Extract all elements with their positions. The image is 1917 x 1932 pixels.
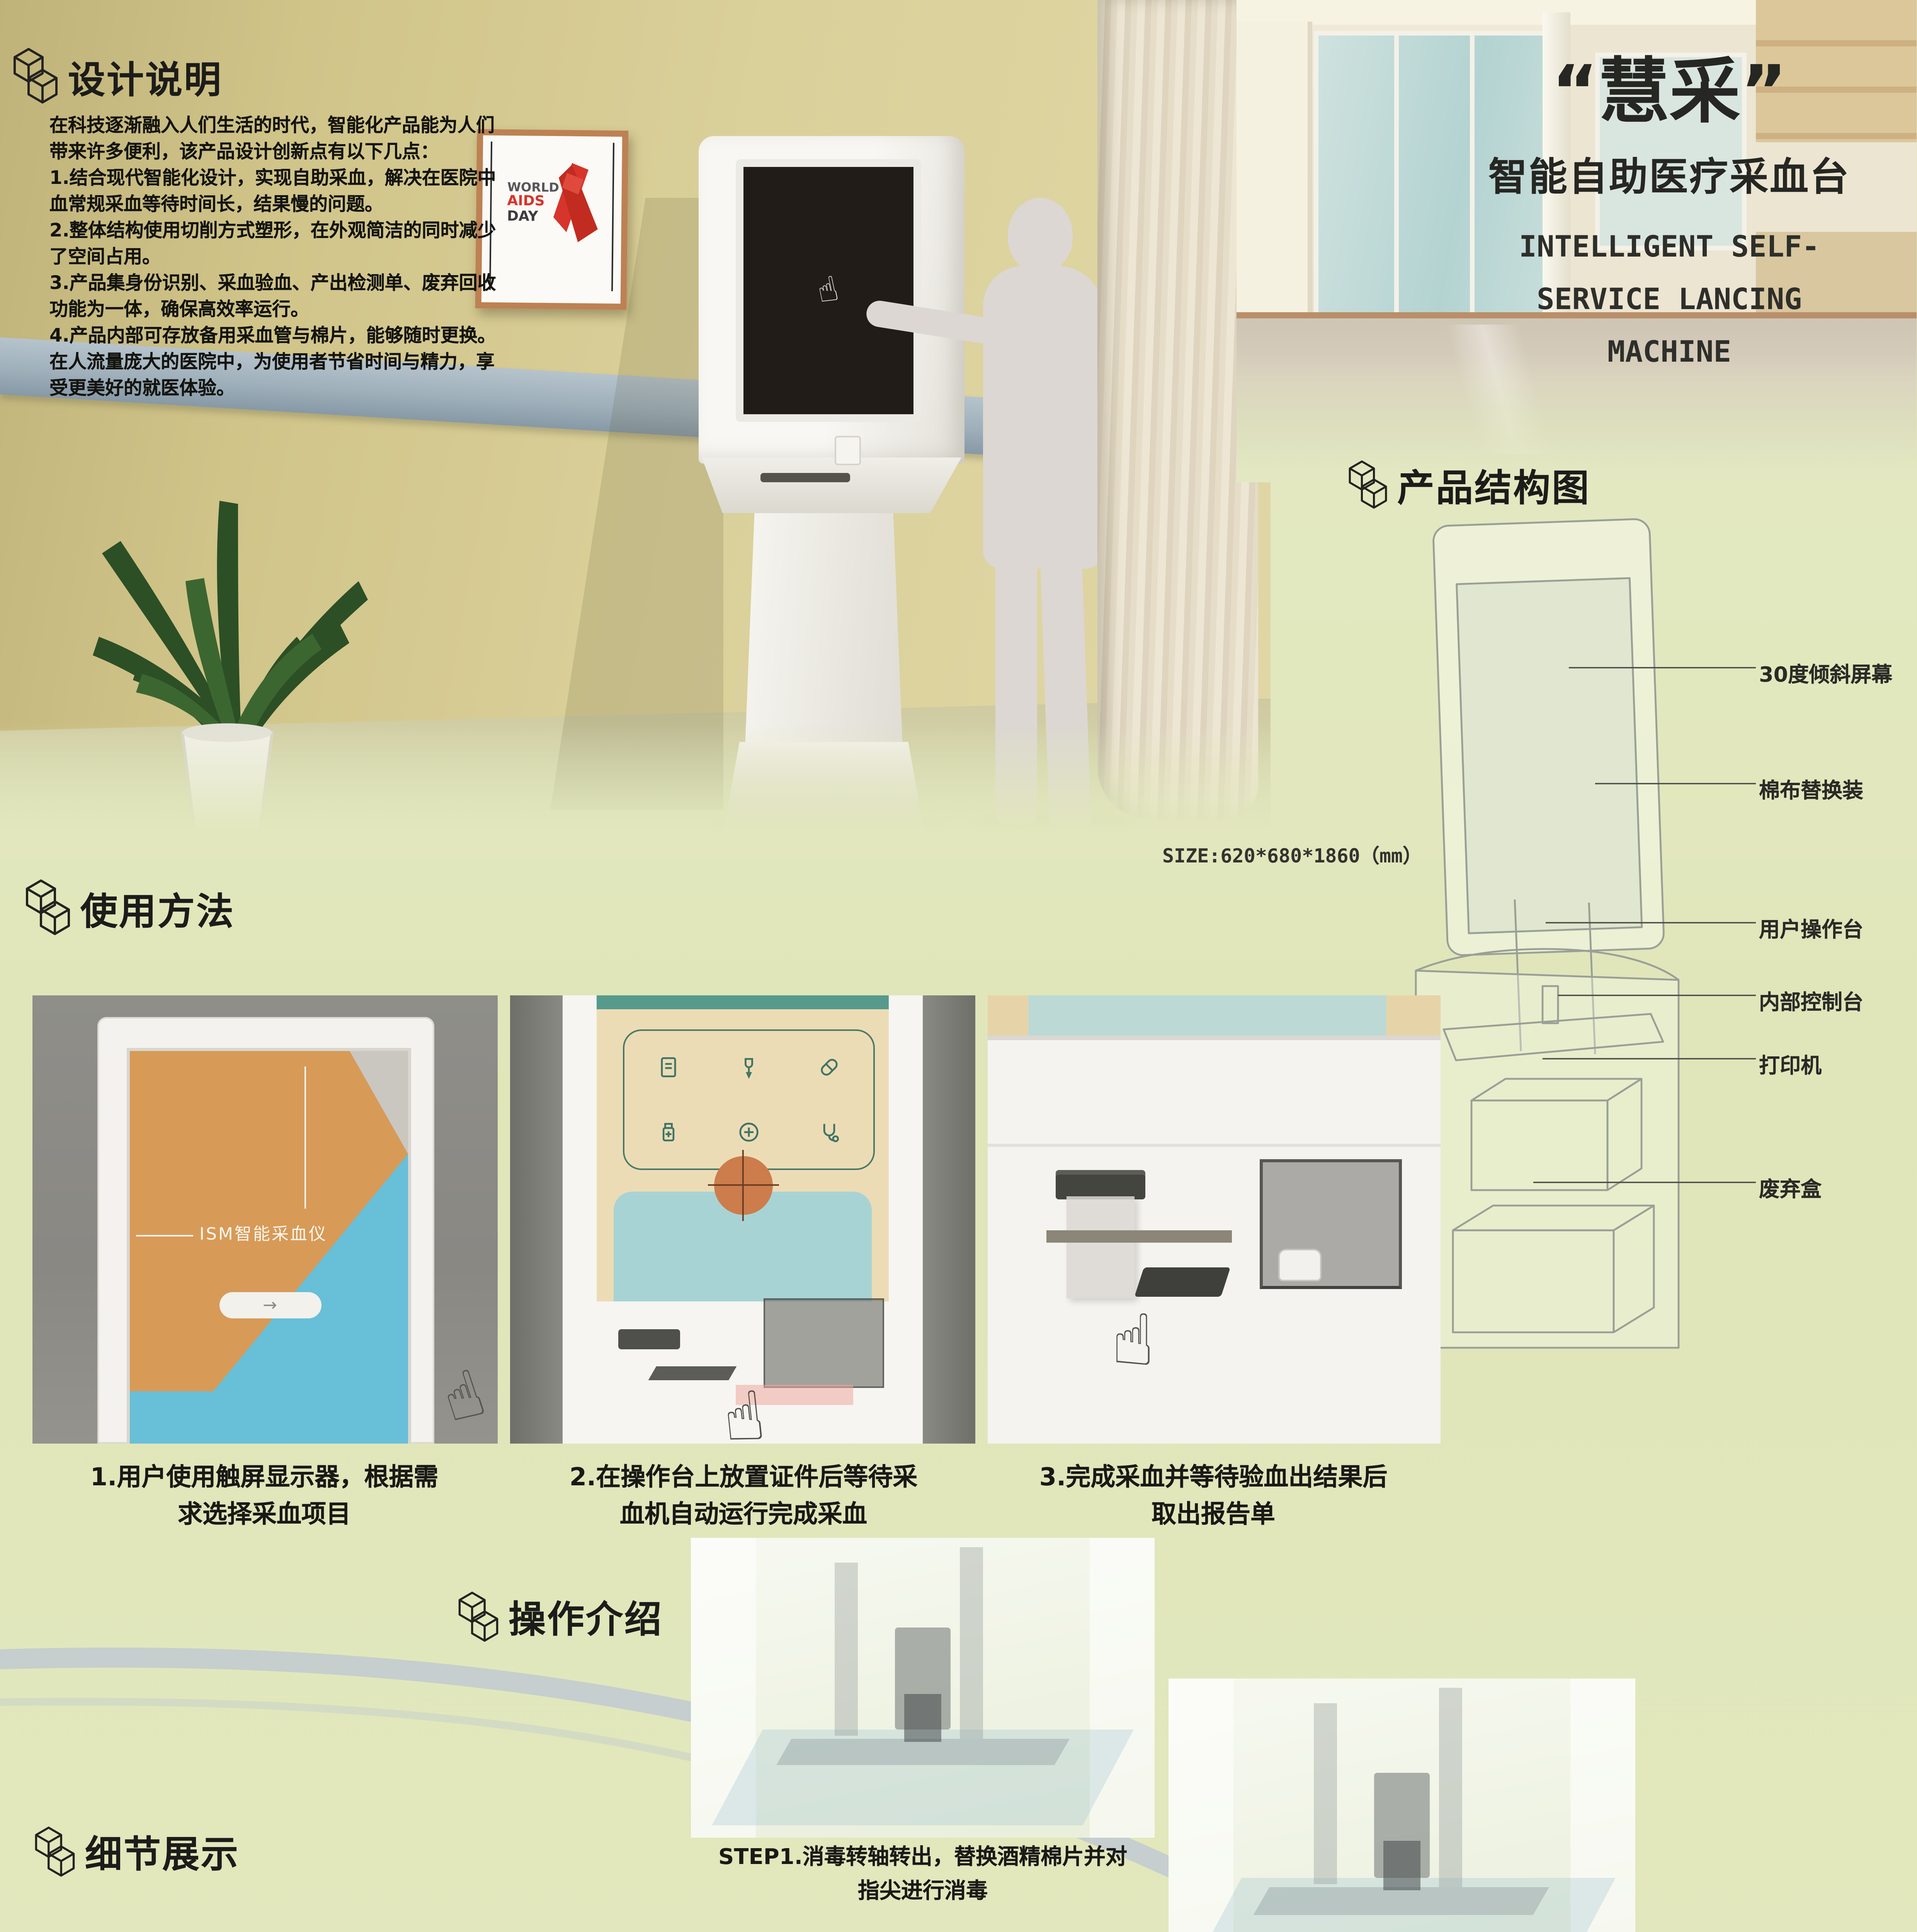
design-note-point: 2.整体结构使用切削方式塑形，在外观简洁的同时减少了空间占用。 [49,218,504,271]
kiosk-touchscreen: ISM智能采血仪 → [127,1048,411,1444]
report-slip [1067,1196,1135,1298]
iv-drip-icon [737,1056,760,1079]
medicine-bottle-icon [657,1120,680,1143]
cube-logo-icon [458,1590,499,1642]
design-note-point: 1.结合现代智能化设计，实现自助采血，解决在医院中血常规采血等待时间长，结果慢的… [49,165,504,218]
kiosk-side-pillar [923,995,975,1444]
operation-step1-image [691,1538,1155,1838]
structure-title: 产品结构图 [1397,457,1590,512]
world-aids-day-text: WORLD AIDS DAY [507,182,559,227]
design-note-closing: 在人流量庞大的医院中，为使用者节省时间与精力，享受更美好的就医体验。 [49,350,504,402]
screen-top-bar [597,995,889,1009]
kiosk-pedestal [745,513,903,748]
curtain [1097,0,1258,819]
medical-cross-icon [737,1120,760,1143]
finger-target-icon [713,1156,772,1214]
touch-hand-icon [720,1377,769,1444]
cube-logo-icon [12,46,59,105]
capsule-icon [817,1056,840,1079]
design-note-title: 设计说明 [68,49,223,103]
sketch-shape [1383,1841,1421,1891]
brand-block: “慧采” 智能自助医疗采血台 INTELLIGENT SELF- SERVICE… [1459,53,1880,379]
printer-slot [618,1329,680,1349]
structure-label-cotton: 棉布替换装 [1759,773,1863,804]
kiosk-touchscreen [597,995,889,1301]
usage-step2-caption: 2.在操作台上放置证件后等待采 血机自动运行完成采血 [498,1459,989,1533]
kiosk-cup [835,436,861,465]
touch-hand-icon [814,270,842,312]
screen-orange-panel [130,1051,408,1444]
stethoscope-icon [817,1120,840,1143]
operation-step1-caption: STEP1.消毒转轴转出，替换酒精棉片并对 指尖进行消毒 [665,1842,1181,1910]
sketch-shape [1439,1688,1463,1888]
product-subtitle-en: INTELLIGENT SELF- SERVICE LANCING MACHIN… [1459,220,1880,379]
structure-label-screen: 30度倾斜屏幕 [1759,657,1892,688]
design-note-point: 3.产品集身份识别、采血验血、产出检测单、废弃回收功能为一体，确保高效率运行。 [49,271,504,323]
tray-mat [1135,1267,1231,1297]
operation-title: 操作介绍 [509,1589,663,1643]
subtitle-en-line: MACHINE [1459,326,1880,379]
touch-hand-icon [434,1355,495,1439]
subtitle-en-line: SERVICE LANCING [1459,273,1880,326]
caption-line: STEP1.消毒转轴转出，替换酒精棉片并对 [665,1842,1181,1876]
sketch-shape [835,1562,858,1736]
medical-record-icon [657,1056,680,1079]
cotton-roll [1278,1249,1322,1281]
caption-line: 3.完成采血并等待验血出结果后 [974,1459,1453,1496]
caption-line: 2.在操作台上放置证件后等待采 [498,1459,989,1496]
usage-step3-caption: 3.完成采血并等待验血出结果后 取出报告单 [974,1459,1453,1533]
screen-bottom-edge [988,995,1441,1040]
design-note-intro: 在科技逐渐融入人们生活的时代，智能化产品能为人们带来许多便利，该产品设计创新点有… [49,113,504,165]
product-subtitle-cn: 智能自助医疗采血台 [1459,146,1880,202]
kiosk-tray [702,457,961,513]
person-body [983,266,1104,569]
cube-logo-icon [1348,459,1388,510]
frame-line [611,143,614,291]
size-dimensions: SIZE:620*680*1860（mm） [1162,839,1422,869]
cube-logo-icon [34,1825,76,1877]
design-note-section: 设计说明 在科技逐渐融入人们生活的时代，智能化产品能为人们带来许多便利，该产品设… [12,46,501,402]
design-note-header: 设计说明 [12,46,501,105]
operation-header: 操作介绍 [458,1589,663,1643]
design-note-point: 4.产品内部可存放备用采血管与棉片，能够随时更换。 [49,323,504,350]
details-title: 细节展示 [85,1824,240,1878]
caption-line: 取出报告单 [974,1496,1453,1533]
structure-label-wastebox: 废弃盒 [1759,1172,1822,1202]
usage-title: 使用方法 [80,880,235,934]
counter-seam [988,1144,1441,1147]
structure-label-printer: 打印机 [1759,1048,1822,1079]
structure-header: 产品结构图 [1348,457,1590,512]
smoked-cover-box [764,1298,884,1388]
target-cross [707,1184,778,1186]
subtitle-en-line: INTELLIGENT SELF- [1459,220,1880,273]
screen-deco-line [135,1235,194,1236]
details-header: 细节展示 [34,1824,240,1878]
kiosk-head [699,136,964,464]
start-button: → [219,1293,321,1319]
sketch-shape [1313,1704,1336,1885]
usage-step2-image [510,995,975,1444]
tray-mat [648,1366,737,1380]
usage-step1-image: ISM智能采血仪 → [32,995,498,1444]
sketch-shape [960,1547,983,1739]
hallway-door [1237,22,1312,359]
sketch-shape [904,1694,941,1742]
tray-strip [1046,1230,1232,1243]
kiosk-front: ISM智能采血仪 → [97,1017,434,1444]
design-poster-board: WORLD AIDS DAY [0,0,1917,1932]
grab-hand-icon [1111,1298,1155,1382]
kiosk-front [563,995,923,1444]
glass-mullion [1394,36,1398,326]
caption-line: 血机自动运行完成采血 [498,1496,989,1533]
kiosk-screen [736,159,921,422]
cube-logo-icon [25,878,71,937]
caption-line: 指尖进行消毒 [665,1876,1181,1910]
caption-line: 求选择采血项目 [15,1496,513,1533]
kiosk-tray-slot [760,473,850,482]
red-ribbon-icon [553,161,603,248]
kiosk-side-pillar [510,995,563,1444]
usage-step1-caption: 1.用户使用触屏显示器，根据需 求选择采血项目 [15,1459,513,1533]
sketch-shape [776,1739,1070,1766]
caption-line: 1.用户使用触屏显示器，根据需 [15,1459,513,1496]
screen-icon-panel [623,1029,875,1170]
usage-step3-image [988,995,1441,1444]
screen-title: ISM智能采血仪 [199,1221,327,1246]
structure-label-console: 用户操作台 [1759,912,1863,943]
sketch-shape [1254,1888,1550,1916]
design-note-text: 在科技逐渐融入人们生活的时代，智能化产品能为人们带来许多便利，该产品设计创新点有… [49,113,504,402]
report-printer [1056,1175,1145,1199]
person-head [1008,198,1073,272]
structure-label-control: 内部控制台 [1759,985,1863,1015]
product-name: “慧采” [1459,53,1880,131]
usage-header: 使用方法 [25,878,235,937]
screen-deco-line [305,1067,307,1209]
operation-step2-image [1169,1679,1635,1932]
